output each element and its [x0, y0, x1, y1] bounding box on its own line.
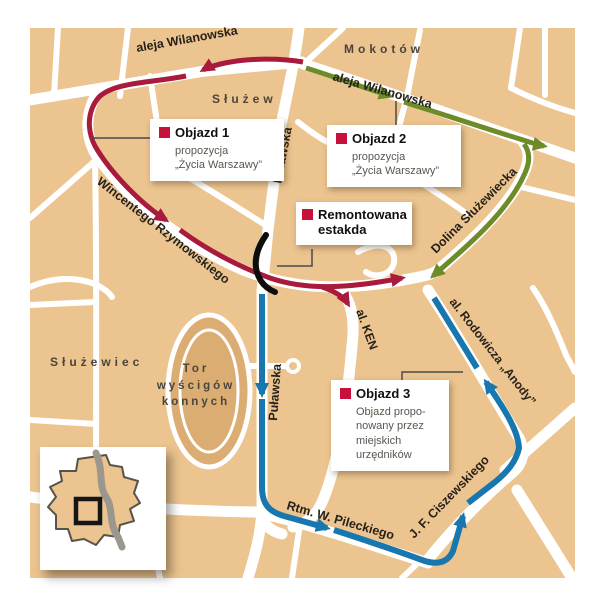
- callout-objazd-1: Objazd 1 propozycja „Życia Warszawy”: [150, 119, 284, 181]
- callout-objazd-2: Objazd 2 propozycja „Życia Warszawy”: [327, 125, 461, 187]
- callout-estakada: Remontowana estakda: [296, 202, 412, 245]
- callout-objazd-1-title-row: Objazd 1: [159, 126, 275, 141]
- callout-objazd-3-title-row: Objazd 3: [340, 387, 440, 402]
- district-label-sluzewiec: Służewiec: [50, 355, 143, 369]
- warsaw-inset-map: [40, 447, 166, 570]
- callout-estakada-title-row: Remontowana estakda: [302, 208, 406, 238]
- racetrack-label-line1: Tor: [183, 363, 210, 375]
- district-label-sluzew: Służew: [212, 92, 277, 106]
- red-square-icon: [159, 127, 170, 138]
- callout-objazd-3-body: Objazd propo- nowany przez miejskich urz…: [356, 405, 440, 463]
- callout-objazd-3: Objazd 3 Objazd propo- nowany przez miej…: [331, 380, 449, 471]
- red-square-icon: [340, 388, 351, 399]
- callout-objazd-1-title: Objazd 1: [175, 126, 229, 141]
- callout-objazd-2-title-row: Objazd 2: [336, 132, 452, 147]
- callout-objazd-2-title: Objazd 2: [352, 132, 406, 147]
- roundabout: [287, 360, 299, 372]
- warsaw-inset-canvas: [40, 447, 166, 570]
- racetrack-label-line2: wyścigów: [156, 380, 235, 392]
- callout-objazd-3-title: Objazd 3: [356, 387, 410, 402]
- red-square-icon: [336, 133, 347, 144]
- callout-estakada-title: Remontowana estakda: [318, 208, 407, 238]
- red-square-icon: [302, 209, 313, 220]
- racetrack-label-line3: konnych: [162, 396, 230, 408]
- detour-map-figure: aleja Wilanowska aleja Wilanowska Puławs…: [0, 0, 600, 591]
- callout-objazd-2-body: propozycja „Życia Warszawy”: [352, 150, 452, 179]
- callout-objazd-1-body: propozycja „Życia Warszawy”: [175, 144, 275, 173]
- district-label-mokotow: Mokotów: [344, 42, 424, 56]
